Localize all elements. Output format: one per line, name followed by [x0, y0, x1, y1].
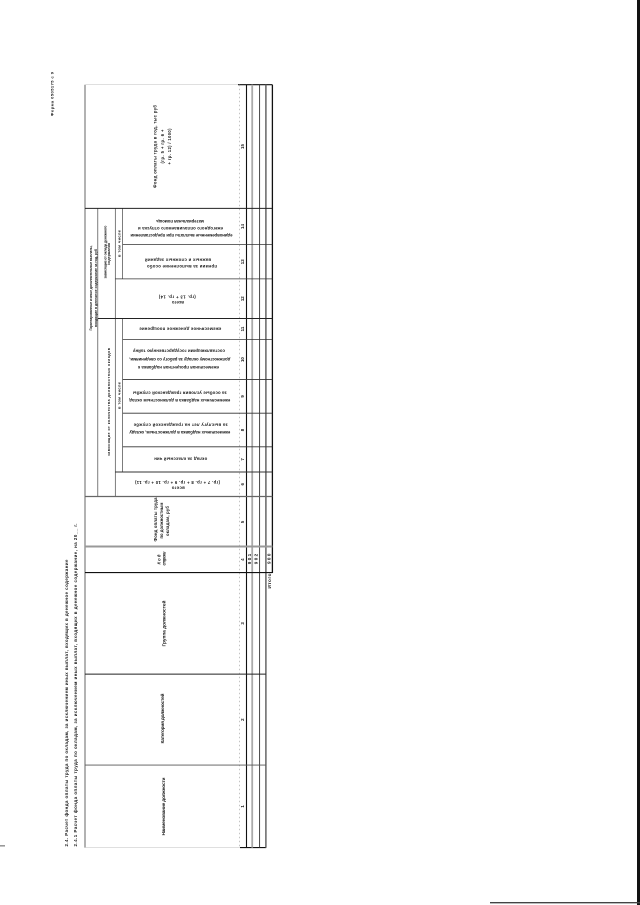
svg-text:11: 11 — [240, 326, 245, 331]
svg-text:премии за выполнение особо: премии за выполнение особо — [147, 264, 217, 269]
svg-text:13: 13 — [240, 259, 245, 264]
svg-text:Фонд оплаты труда: Фонд оплаты труда — [153, 497, 158, 542]
svg-text:важных и сложных заданий: важных и сложных заданий — [145, 257, 211, 262]
svg-text:902: 902 — [253, 553, 258, 564]
svg-text:за выслугу лет на гражданской: за выслугу лет на гражданской службе — [133, 422, 228, 427]
svg-text:по должностным: по должностным — [159, 503, 164, 539]
svg-text:Форма 0505175 с 9: Форма 0505175 с 9 — [49, 71, 54, 116]
svg-text:+ гр. 12) / 1000): + гр. 12) / 1000) — [167, 128, 172, 165]
svg-text:1: 1 — [240, 805, 245, 808]
svg-text:ежегодного оплачиваемого отпус: ежегодного оплачиваемого отпуска и — [138, 226, 223, 231]
svg-text:4: 4 — [240, 558, 245, 561]
svg-text:Гарантированные и иные дополни: Гарантированные и иные дополнительные вы… — [89, 245, 93, 330]
svg-text:ежемесячных надбавка в должнос: ежемесячных надбавка в должностным оклад — [129, 398, 230, 403]
svg-text:15: 15 — [240, 144, 245, 149]
svg-text:900: 900 — [266, 553, 271, 564]
svg-text:содержания: содержания — [107, 243, 111, 265]
svg-text:5: 5 — [240, 520, 245, 523]
svg-text:6: 6 — [240, 483, 245, 486]
svg-text:2.4.1 Расчет фонда оплаты труд: 2.4.1 Расчет фонда оплаты труда по оклад… — [73, 524, 78, 847]
svg-text:составляющими государственную: составляющими государственную тайну — [132, 349, 225, 354]
svg-text:материальная помощь: материальная помощь — [156, 219, 204, 224]
svg-text:2.4. Расчет фонда оплаты труда: 2.4. Расчет фонда оплаты труда по оклада… — [64, 559, 69, 847]
svg-text:зависящие от количества должно: зависящие от количества должностных окла… — [107, 347, 111, 456]
svg-text:Фонд оплаты труда в год, тыс р: Фонд оплаты труда в год, тыс руб — [153, 105, 158, 188]
svg-text:всего: всего — [171, 486, 184, 491]
svg-text:3: 3 — [240, 622, 245, 625]
svg-text:Категория должностей: Категория должностей — [159, 693, 166, 743]
svg-text:единовременные выплаты при пре: единовременные выплаты при предоставлени… — [130, 233, 232, 238]
svg-text:ежемесячная процентная надбавк: ежемесячная процентная надбавка к — [137, 365, 219, 370]
svg-text:всего: всего — [172, 300, 184, 305]
svg-text:окладам, руб: окладам, руб — [165, 506, 170, 536]
svg-text:10: 10 — [240, 357, 245, 362]
svg-text:8: 8 — [240, 428, 245, 431]
svg-text:должностному окладу за работу: должностному окладу за работу со сведени… — [129, 357, 230, 362]
svg-text:ежемесячных надбавка в должнос: ежемесячных надбавка в должностным, окла… — [129, 430, 231, 435]
svg-text:ежемесячное денежное поощрение: ежемесячное денежное поощрение — [139, 327, 222, 332]
svg-text:7: 7 — [240, 458, 245, 461]
svg-text:(гр. 5 + гр. 6 +: (гр. 5 + гр. 6 + — [160, 129, 165, 164]
svg-text:2: 2 — [240, 718, 245, 721]
svg-text:Группа должностей: Группа должностей — [161, 600, 168, 646]
svg-text:14: 14 — [240, 224, 245, 229]
svg-text:901: 901 — [247, 553, 252, 564]
svg-text:Наименование должности: Наименование должности — [161, 777, 167, 835]
svg-text:в том числе: в том числе — [116, 229, 121, 257]
svg-text:за особые условия гражданской: за особые условия гражданской службы — [132, 391, 226, 396]
svg-text:Итого: Итого — [267, 573, 272, 588]
svg-text:(гр. 7 + гр. 8 + гр. 9 + гр. 1: (гр. 7 + гр. 8 + гр. 9 + гр. 10 + гр. 11… — [134, 480, 220, 485]
svg-text:входящие в денежное содержание: входящие в денежное содержание за год, р… — [94, 249, 98, 327]
svg-text:оклад за классный чин: оклад за классный чин — [154, 456, 207, 461]
svg-text:(гр. 13 + гр. 14): (гр. 13 + гр. 14) — [158, 294, 196, 299]
svg-text:12: 12 — [240, 296, 245, 301]
svg-text:в том числе: в том числе — [116, 381, 121, 409]
svg-text:9: 9 — [240, 395, 245, 398]
svg-text:строки: строки — [162, 551, 167, 565]
